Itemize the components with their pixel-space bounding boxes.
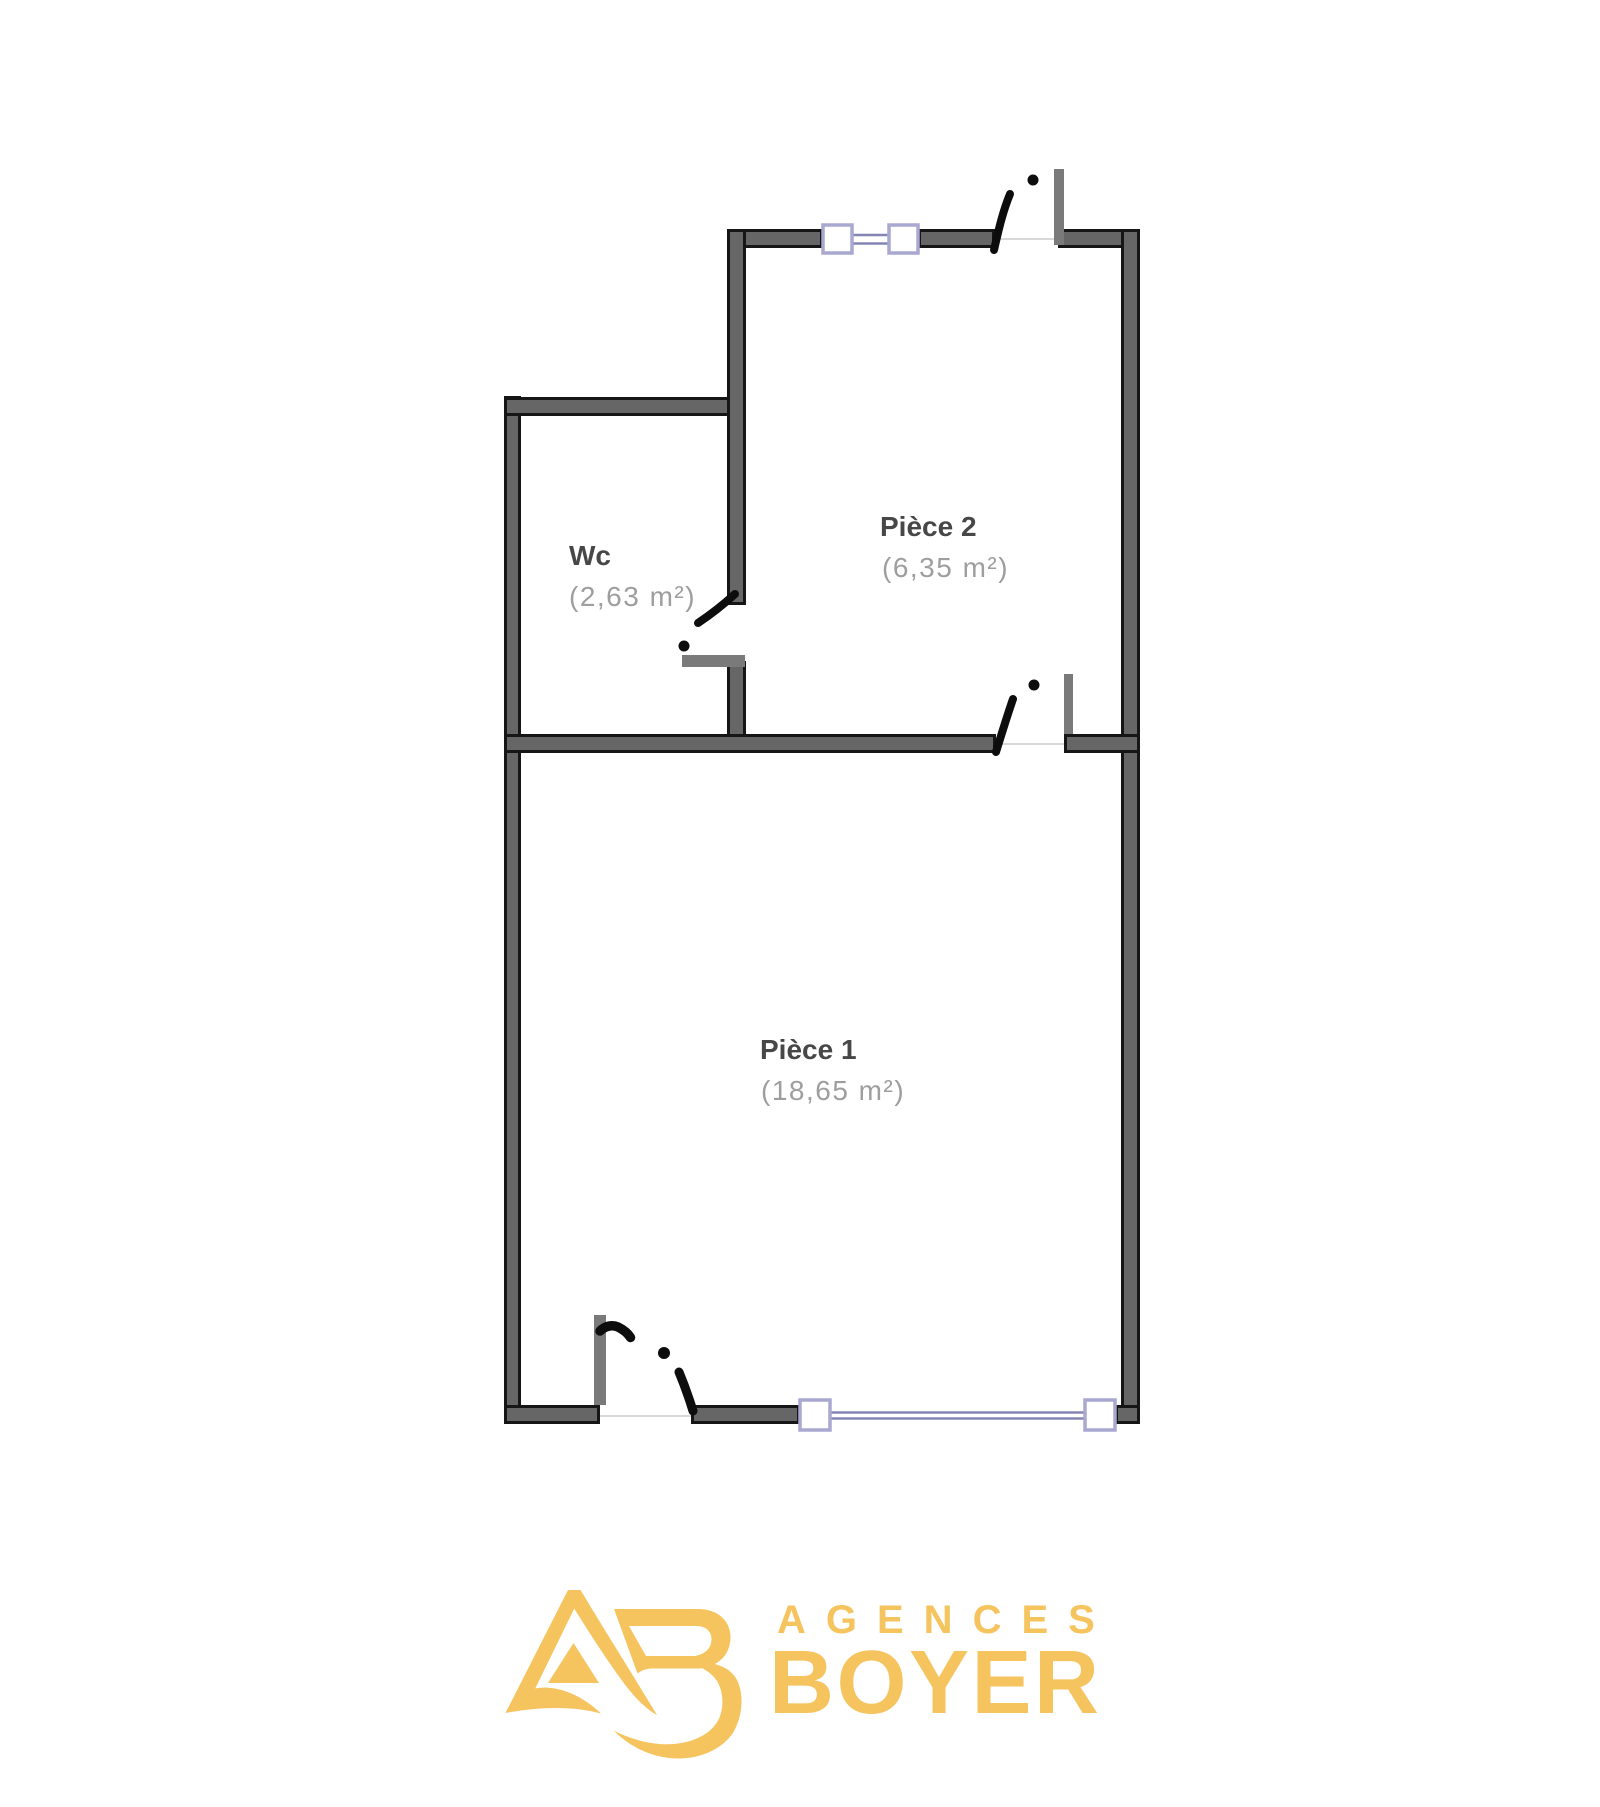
svg-text:(2,63 m²): (2,63 m²) [569,581,696,612]
svg-text:Pièce 2: Pièce 2 [880,511,977,542]
svg-text:BOYER: BOYER [769,1633,1102,1733]
svg-text:(18,65 m²): (18,65 m²) [761,1075,905,1106]
svg-text:(6,35 m²): (6,35 m²) [882,552,1009,583]
svg-text:Pièce 1: Pièce 1 [760,1034,857,1065]
svg-text:Wc: Wc [569,540,611,571]
